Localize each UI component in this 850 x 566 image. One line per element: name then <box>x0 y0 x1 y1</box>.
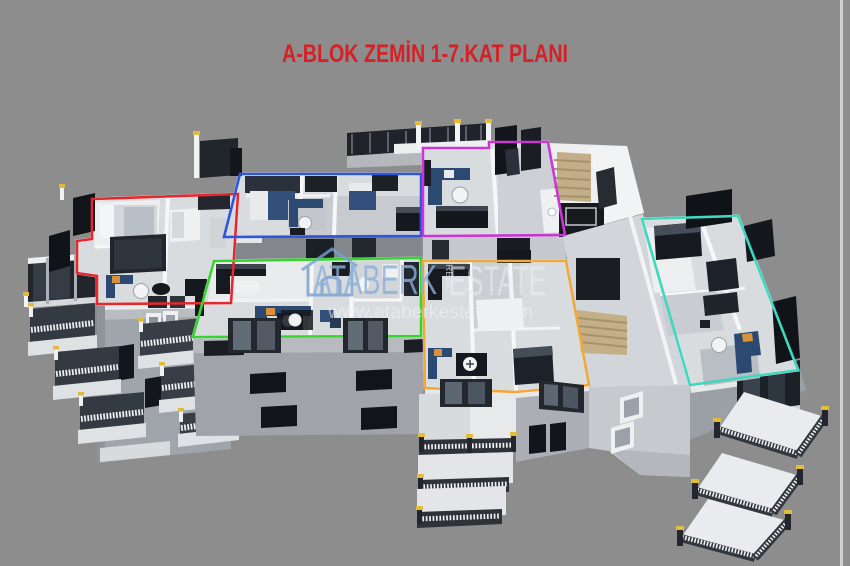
svg-text:ESTATE: ESTATE <box>449 257 546 304</box>
svg-text:www.ataberkestate.com: www.ataberkestate.com <box>327 302 533 323</box>
svg-text:ATABERK: ATABERK <box>313 256 437 303</box>
svg-text:A-BLOK ZEMİN 1-7.KAT PLANI: A-BLOK ZEMİN 1-7.KAT PLANI <box>282 40 568 68</box>
